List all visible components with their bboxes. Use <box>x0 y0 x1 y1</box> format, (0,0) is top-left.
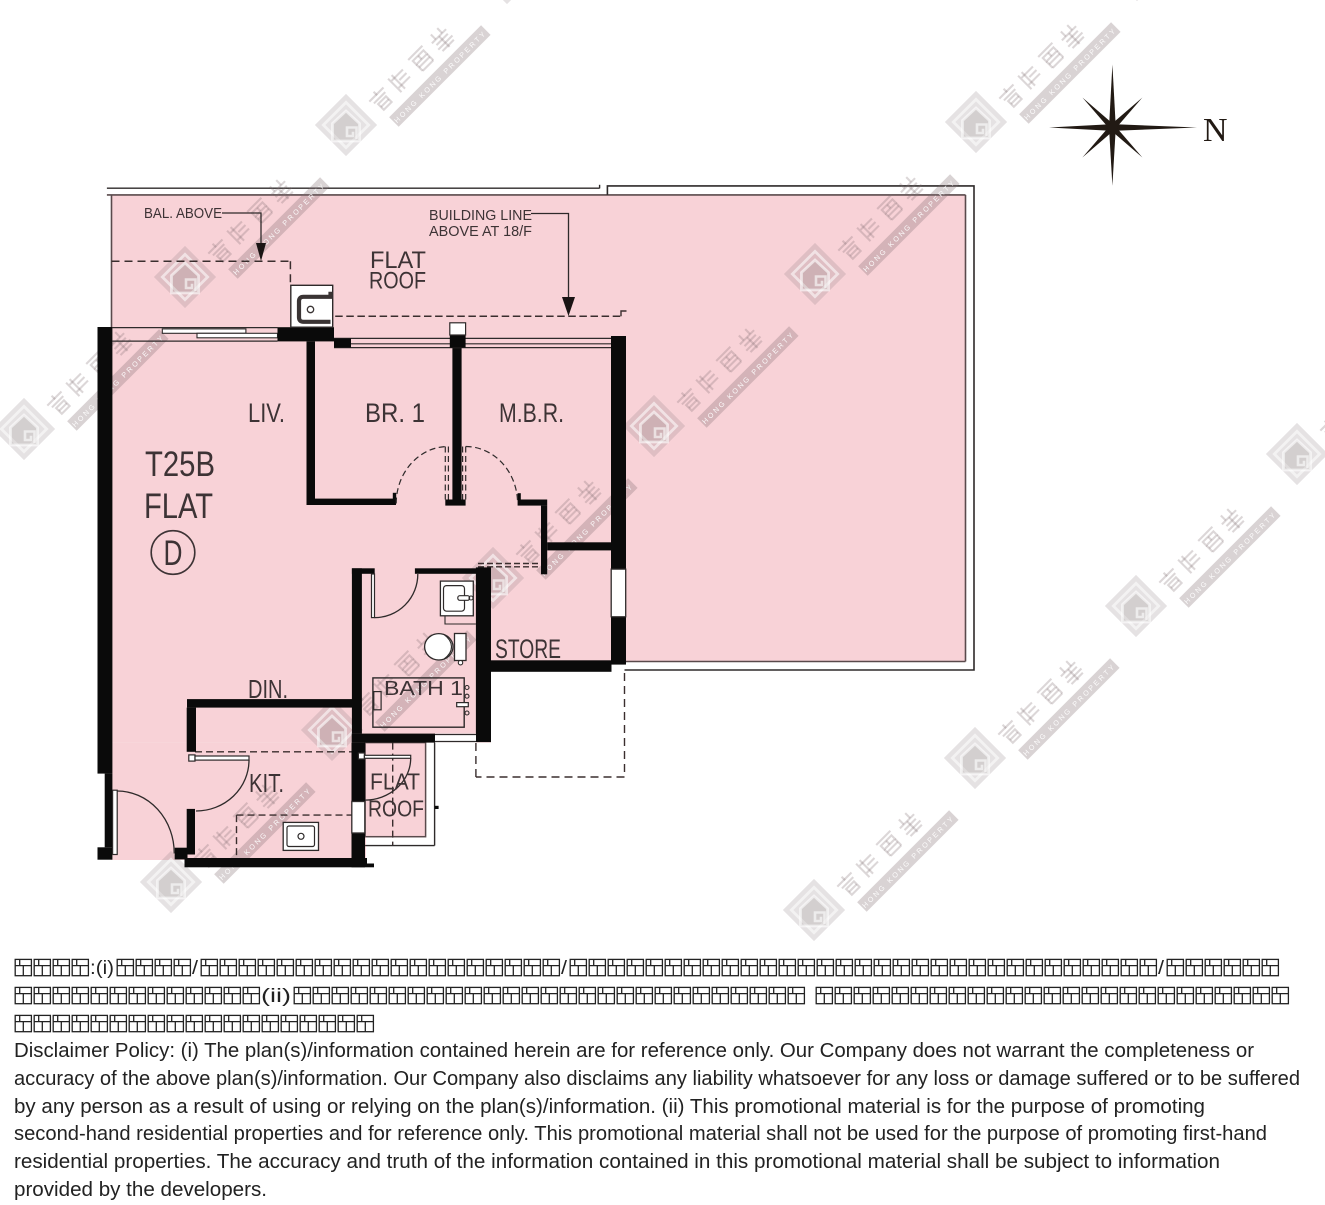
svg-text:accuracy of the above plan(s)/: accuracy of the above plan(s)/informatio… <box>14 1068 1300 1090</box>
svg-text:/: / <box>192 957 199 979</box>
svg-text:BAL. ABOVE: BAL. ABOVE <box>144 205 222 222</box>
svg-text:N: N <box>1203 112 1228 149</box>
svg-text:Disclaimer Policy: (i) The pla: Disclaimer Policy: (i) The plan(s)/infor… <box>14 1040 1254 1062</box>
svg-text:provided by the developers.: provided by the developers. <box>14 1179 267 1201</box>
svg-text:M.B.R.: M.B.R. <box>499 398 564 428</box>
svg-text:/: / <box>1158 957 1165 979</box>
svg-text:second-hand residential proper: second-hand residential properties and f… <box>14 1123 1267 1145</box>
svg-text:(ii): (ii) <box>261 985 291 1007</box>
svg-text:T25B: T25B <box>145 445 215 484</box>
svg-text:FLAT: FLAT <box>370 769 420 795</box>
svg-text:BR. 1: BR. 1 <box>365 398 425 428</box>
svg-text:FLAT: FLAT <box>144 487 213 526</box>
svg-text:STORE: STORE <box>495 634 561 664</box>
svg-text:DIN.: DIN. <box>248 674 288 704</box>
svg-text:residential properties. The ac: residential properties. The accuracy and… <box>14 1151 1220 1173</box>
svg-text:ROOF: ROOF <box>369 268 426 295</box>
svg-text::(i): :(i) <box>90 957 114 979</box>
svg-text:BUILDING LINE: BUILDING LINE <box>429 207 532 224</box>
svg-text:by any person as a result of u: by any person as a result of using or re… <box>14 1096 1205 1118</box>
svg-text:LIV.: LIV. <box>248 398 285 428</box>
svg-text:ABOVE AT 18/F: ABOVE AT 18/F <box>429 223 532 240</box>
svg-text:/: / <box>561 957 568 979</box>
svg-text:D: D <box>164 534 183 573</box>
svg-text:KIT.: KIT. <box>249 768 284 798</box>
svg-text:BATH 1: BATH 1 <box>384 678 463 700</box>
svg-text:ROOF: ROOF <box>368 796 424 822</box>
